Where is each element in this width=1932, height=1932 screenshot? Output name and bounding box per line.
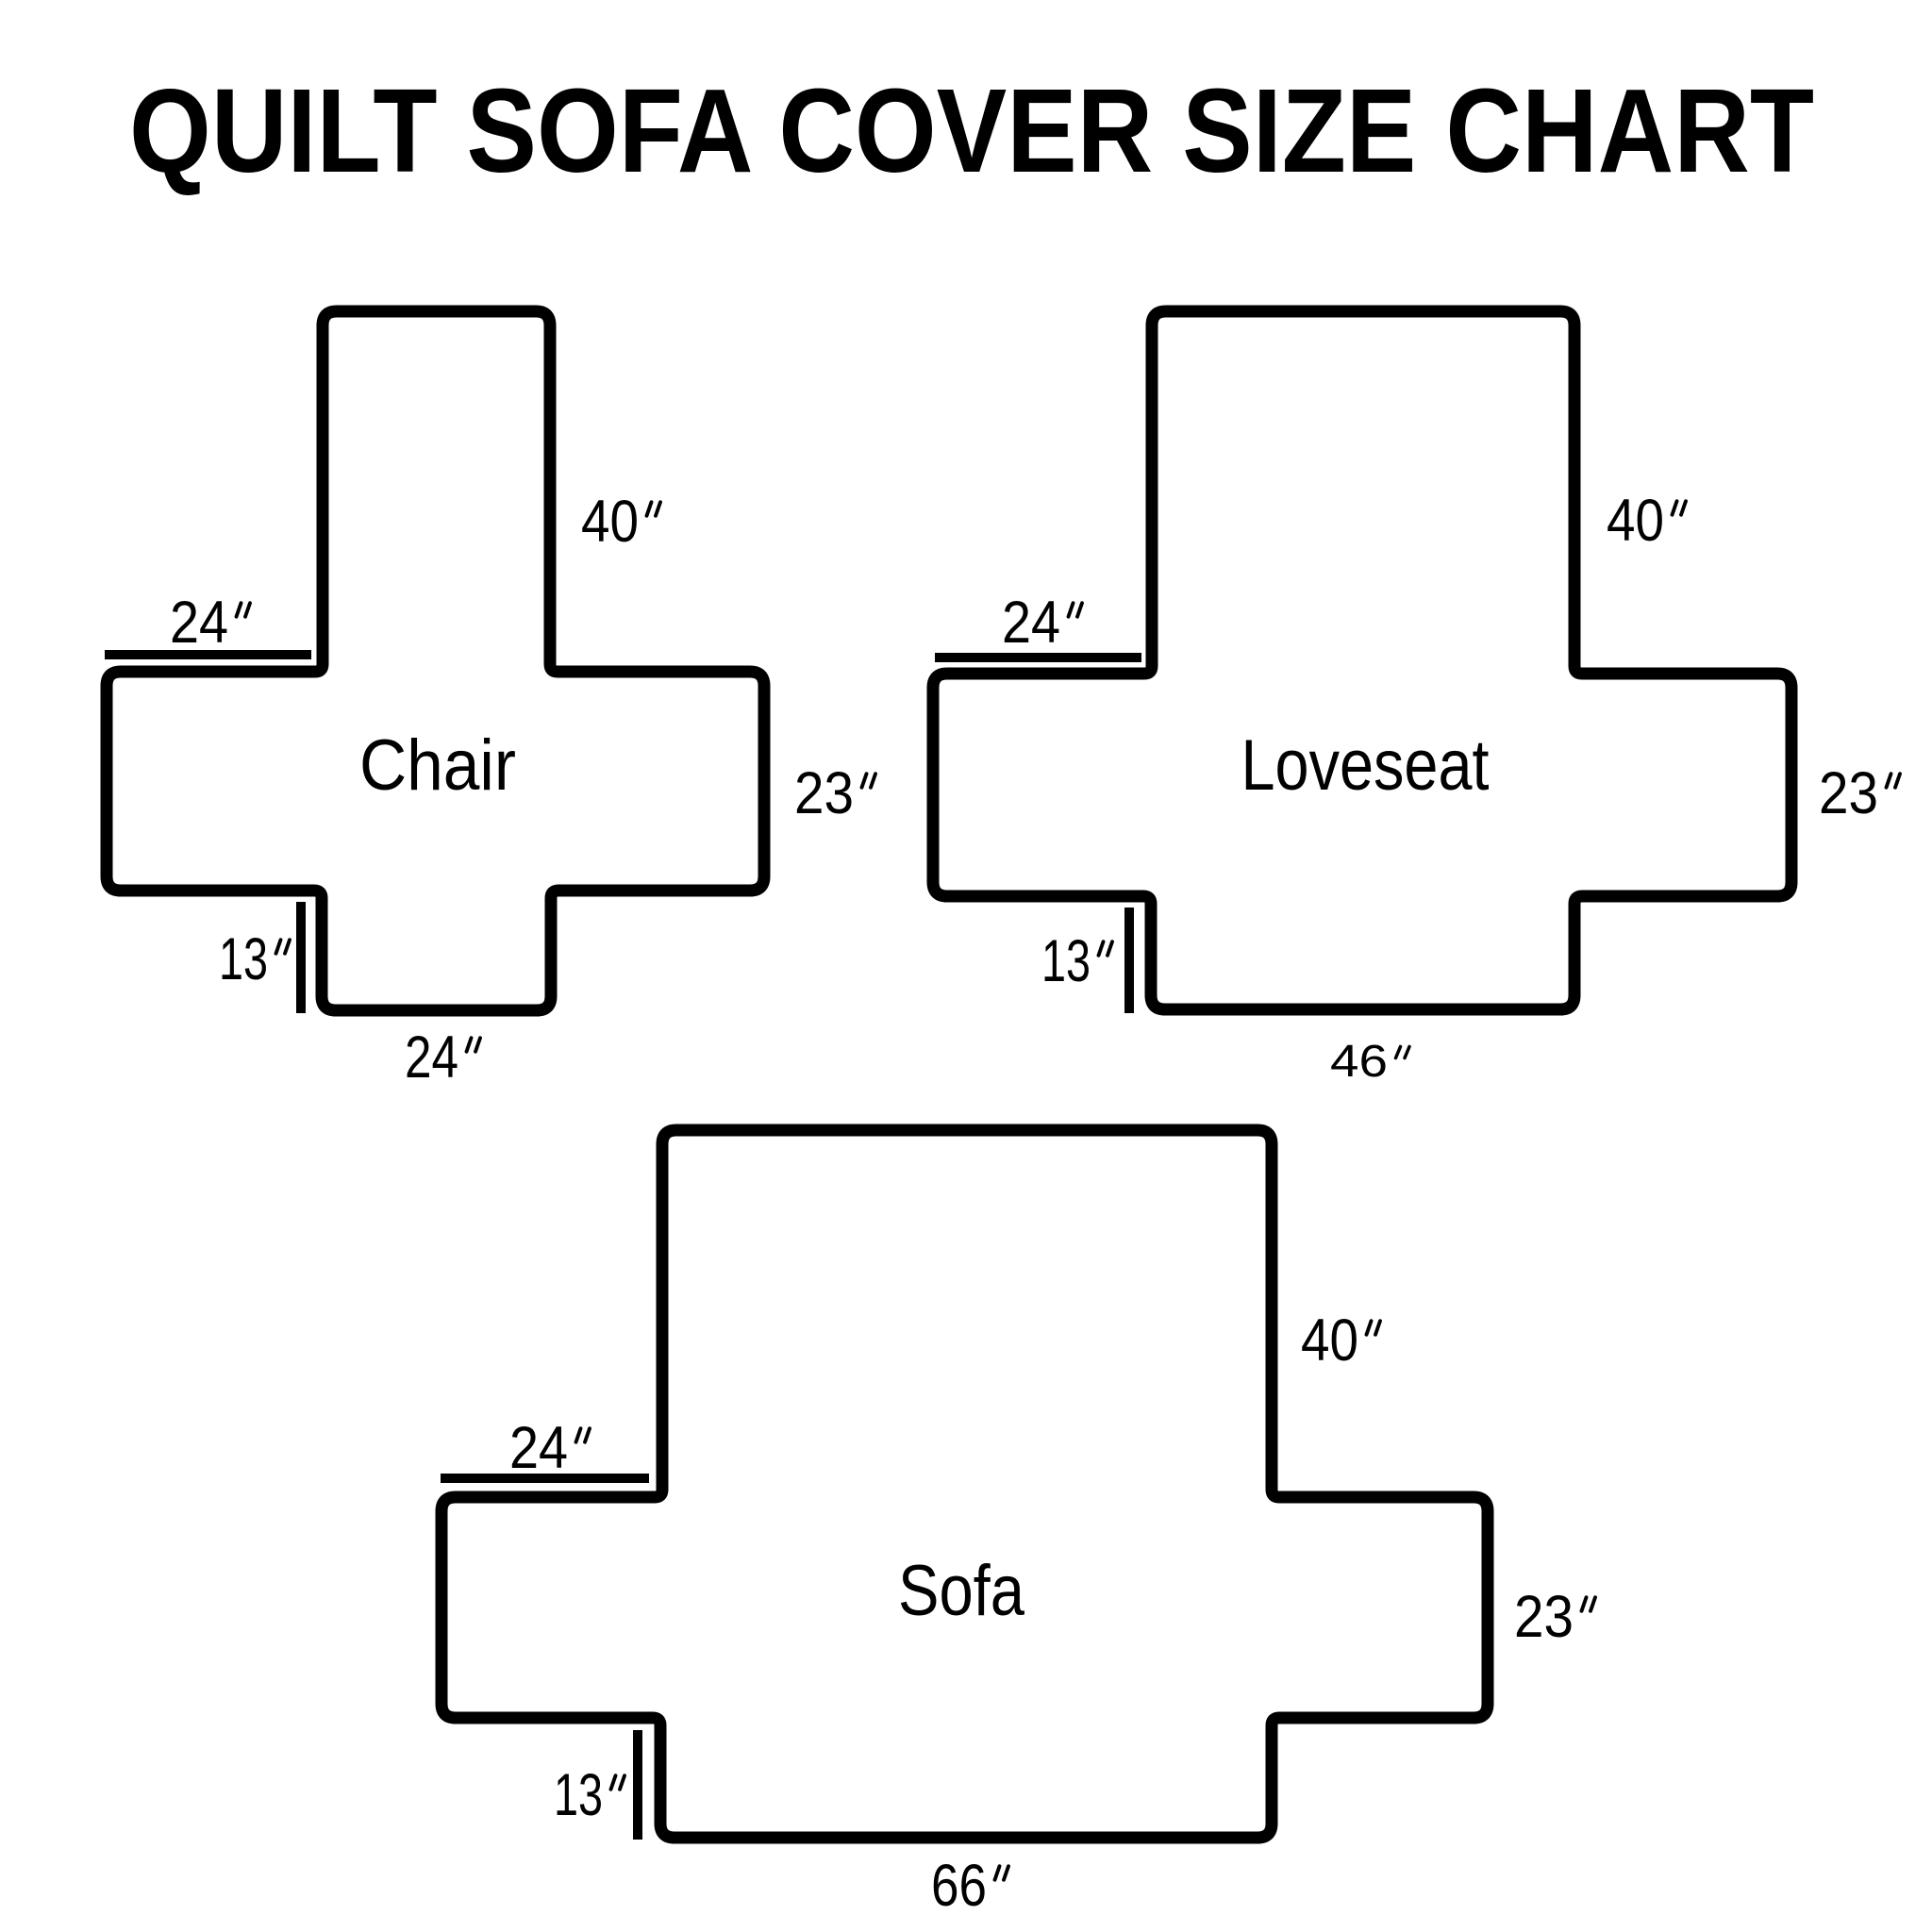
svg-text:Loveseat: Loveseat bbox=[1241, 725, 1490, 806]
svg-text:24: 24 bbox=[170, 590, 228, 656]
svg-text:23: 23 bbox=[794, 760, 854, 826]
svg-text:46: 46 bbox=[1330, 1037, 1388, 1087]
svg-text:13: 13 bbox=[1041, 928, 1091, 994]
svg-text:24: 24 bbox=[509, 1415, 568, 1481]
svg-text:24: 24 bbox=[1002, 590, 1060, 656]
svg-text:Chair: Chair bbox=[359, 725, 516, 806]
svg-text:66: 66 bbox=[931, 1853, 987, 1919]
svg-text:40: 40 bbox=[1301, 1307, 1358, 1374]
svg-text:40: 40 bbox=[1607, 488, 1664, 554]
svg-text:13: 13 bbox=[554, 1762, 603, 1828]
svg-text:24: 24 bbox=[405, 1024, 458, 1091]
svg-text:23: 23 bbox=[1819, 760, 1878, 826]
svg-text:23: 23 bbox=[1514, 1584, 1574, 1650]
svg-text:QUILT SOFA COVER SIZE CHART: QUILT SOFA COVER SIZE CHART bbox=[129, 64, 1814, 197]
svg-text:13: 13 bbox=[219, 926, 268, 992]
svg-text:Sofa: Sofa bbox=[898, 1551, 1025, 1631]
svg-text:40: 40 bbox=[581, 489, 639, 555]
